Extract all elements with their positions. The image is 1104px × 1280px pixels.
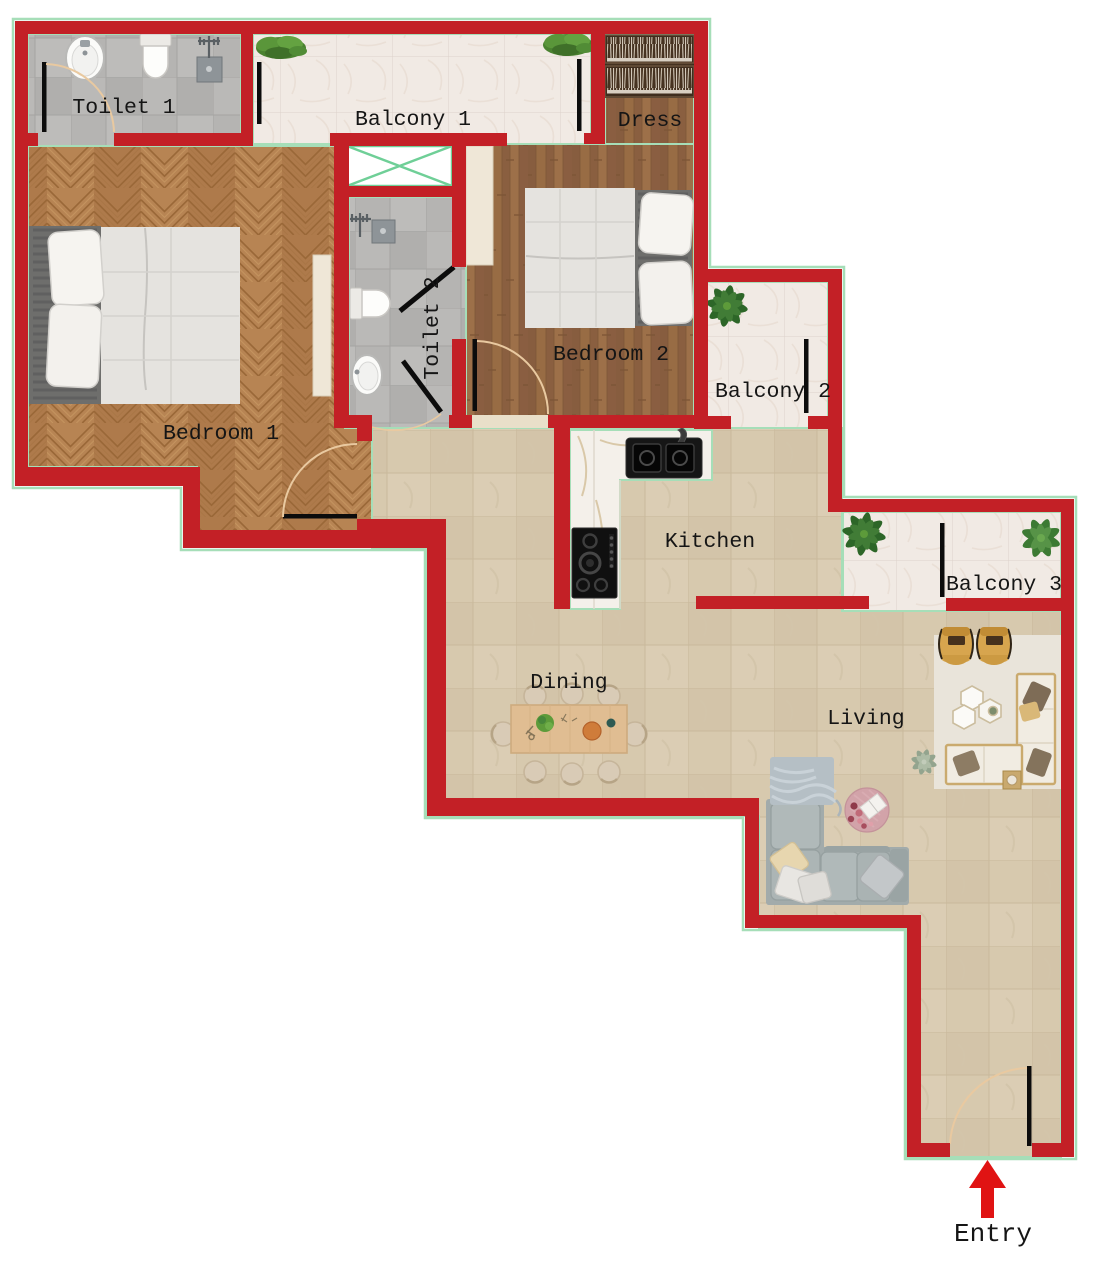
svg-text:Balcony 2: Balcony 2 [715,380,831,404]
svg-text:Entry: Entry [954,1219,1032,1249]
svg-text:Dress: Dress [618,109,683,133]
svg-text:Balcony 1: Balcony 1 [355,108,471,132]
svg-text:Toilet 2: Toilet 2 [421,276,445,379]
svg-text:Balcony 3: Balcony 3 [946,573,1062,597]
svg-text:Living: Living [827,707,904,731]
svg-text:Dining: Dining [530,671,607,695]
svg-text:Bedroom 2: Bedroom 2 [553,343,669,367]
svg-text:Toilet 1: Toilet 1 [72,96,175,120]
svg-text:Kitchen: Kitchen [665,530,755,554]
svg-text:Bedroom 1: Bedroom 1 [163,422,279,446]
